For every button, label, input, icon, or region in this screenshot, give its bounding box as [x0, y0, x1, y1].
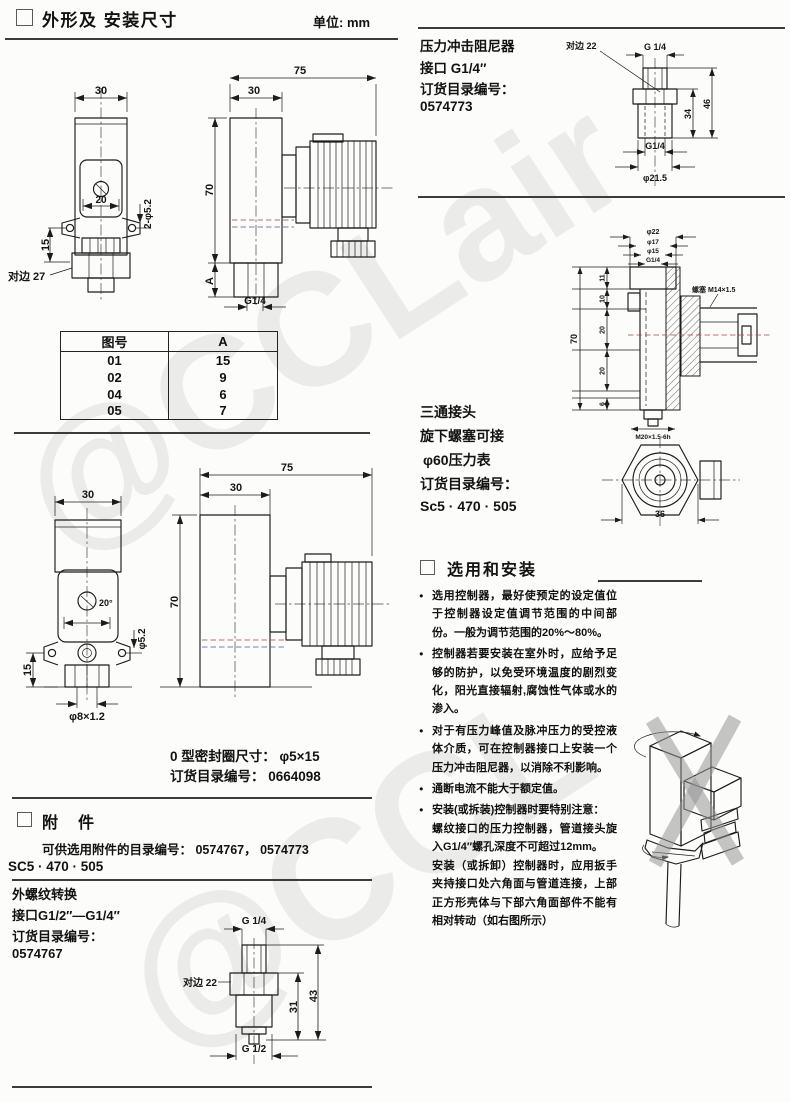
table-header-row: 图号 A [61, 332, 278, 352]
dim-label: G 1/4 [242, 916, 267, 927]
section-checkbox [17, 812, 32, 827]
dim-label: 15 [40, 239, 52, 251]
dim-label: 20 [600, 326, 607, 334]
cell-a: 6 [169, 386, 278, 403]
list-item: 安装(或拆装)控制器时要特别注意： 螺纹接口的压力控制器，管道接头旋入G1/4″… [419, 801, 617, 930]
bullet-text: 控制器若要安装在室外时，应给予足够的防护，以免受环境温度的剧烈变化，阳光直接辐射… [432, 648, 617, 715]
dim-label: 46 [702, 99, 712, 109]
dim-label: 20° [99, 598, 113, 608]
cell-a: 7 [169, 403, 278, 420]
divider [12, 797, 372, 799]
dim-label: 70 [169, 596, 181, 608]
divider [14, 432, 370, 434]
dim-label: 36 [655, 509, 665, 519]
dim-label: M20×1.5-6h [635, 434, 670, 441]
dim-label: 20 [600, 367, 607, 375]
list-item: 选用控制器，最好使预定的设定值位于控制器设定值调节范围的中间部份。一般为调节范围… [419, 587, 617, 642]
tee-note-1: 旋下螺塞可接 [420, 426, 504, 446]
table-row: 0115 [61, 352, 278, 369]
cell-no: 05 [61, 403, 169, 420]
col-header-a: A [169, 332, 278, 352]
bullet-subtext: 安装（或拆卸）控制器时，应用扳手夹持接口处六角面与管道连接，上部正方形壳体与下部… [432, 857, 617, 931]
table-row: 046 [61, 386, 278, 403]
bullet-text: 通断电流不能大于额定值。 [432, 783, 564, 795]
tee-note-2: φ60压力表 [423, 450, 491, 470]
page-title: 外形及 安装尺寸 [42, 6, 178, 31]
list-item: 通断电流不能大于额定值。 [419, 780, 617, 798]
divider [418, 27, 785, 29]
dim-label: φ17 [647, 239, 659, 246]
dim-label: 30 [230, 482, 242, 494]
adapter-catalog-label: 订货目录编号： [12, 926, 103, 945]
dim-label: 对边 27 [8, 269, 45, 283]
oring-size-note: 0 型密封圈尺寸： φ5×15 [170, 745, 320, 765]
adapter-catalog-number: 0574767 [12, 946, 63, 961]
bullet-text: 对于有压力峰值及脉冲压力的受控液体介质，可在控制器接口上安装一个压力冲击阻尼器，… [432, 725, 617, 774]
bullet-text: 安装(或拆装)控制器时要特别注意： [432, 801, 617, 819]
drawing-tee-connector: φ22 φ17 φ15 G1/4 螺塞 M14×1.5 [540, 212, 790, 538]
tee-catalog-label: 订货目录编号： [420, 474, 518, 494]
divider [418, 196, 785, 198]
list-item: 对于有压力峰值及脉冲压力的受控液体介质，可在控制器接口上安装一个压力冲击阻尼器，… [419, 722, 617, 777]
figure-number-table: 图号 A 0115 029 046 057 [60, 331, 278, 420]
drawing-outline-dimensions-1: 30 20 15 2-φ5.2 对边 27 [0, 55, 400, 325]
section-checkbox [420, 560, 435, 575]
cell-no: 04 [61, 386, 169, 403]
dim-label: 70 [204, 184, 216, 196]
dim-label: 20 [95, 195, 107, 206]
damper-catalog-label: 订货目录编号： [420, 78, 515, 98]
divider [12, 1086, 372, 1088]
cell-no: 01 [61, 352, 169, 369]
selection-title: 选用和安装 [447, 556, 537, 580]
drawing-thread-adapter: G 1/4 对边 22 31 43 G 1/2 [150, 905, 390, 1077]
bottom-view: 36 [601, 437, 740, 527]
bullet-text: 选用控制器，最好使预定的设定值位于控制器设定值调节范围的中间部份。一般为调节范围… [432, 590, 617, 639]
bullet-subtext: 螺纹接口的压力控制器，管道接头旋入G1/4″螺孔深度不可超过12mm。 [432, 820, 617, 857]
dim-label: G1/4 [646, 257, 660, 264]
dim-label: 75 [281, 462, 293, 474]
cell-no: 02 [61, 369, 169, 386]
dim-label: 2-φ5.2 [143, 199, 154, 229]
side-view: 75 30 70 A G1/4 [204, 65, 393, 311]
cell-a: 15 [169, 352, 278, 369]
dim-label: 对边 22 [566, 40, 597, 51]
accessories-model: SC5 · 470 · 505 [8, 859, 103, 874]
section-view: φ22 φ17 φ15 G1/4 螺塞 M14×1.5 [569, 229, 770, 441]
dim-label: 30 [248, 85, 260, 97]
dim-label: φ22 [647, 229, 660, 236]
dim-label: 31 [288, 1001, 300, 1013]
front-view: 30 20° φ5.2 15 φ8×1.2 [22, 489, 148, 723]
dim-label: 30 [82, 489, 94, 501]
damper-catalog-number: 0574773 [420, 99, 473, 114]
drawing-outline-dimensions-2: 30 20° φ5.2 15 φ8×1.2 [0, 455, 400, 747]
dim-label: G1/4 [244, 296, 266, 307]
divider [598, 580, 702, 582]
dim-label: 6 [600, 402, 607, 406]
dim-label: 43 [308, 990, 320, 1002]
table-row: 057 [61, 403, 278, 420]
drawing-pressure-damper: 对边 22 G 1/4 34 46 G1/4 φ21.5 [550, 32, 790, 200]
table-row: 029 [61, 369, 278, 386]
dim-label: 10 [600, 295, 607, 303]
tee-catalog-number: Sc5 · 470 · 505 [420, 498, 517, 514]
unit-label: 单位: mm [313, 12, 370, 31]
dim-label: 75 [294, 65, 306, 77]
dim-label: φ15 [647, 248, 659, 255]
drawing-no-rotation-warning [618, 692, 790, 958]
dim-label: G 1/4 [644, 42, 666, 52]
dim-label: 15 [22, 664, 34, 676]
accessories-catalog-numbers: 可供选用附件的目录编号： 0574767， 0574773 [42, 839, 309, 858]
cross-out-x [652, 718, 738, 864]
dim-label: A [204, 277, 216, 285]
dim-label: φ21.5 [643, 173, 667, 183]
oring-catalog-number: 订货目录编号： 0664098 [170, 765, 321, 785]
dim-label: G1/4 [645, 141, 665, 151]
side-view: 75 30 70 [160, 462, 392, 700]
dim-label: 70 [569, 334, 579, 344]
tee-name: 三通接头 [420, 402, 476, 422]
front-view: 30 20 15 2-φ5.2 对边 27 [8, 85, 154, 300]
adapter-ports: 接口G1/2″—G1/4″ [12, 905, 120, 924]
cell-a: 9 [169, 369, 278, 386]
adapter-name: 外螺纹转换 [12, 884, 77, 903]
dim-label: 对边 22 [183, 976, 217, 989]
dim-label: 11 [600, 274, 607, 282]
dim-label: φ8×1.2 [69, 711, 105, 723]
section-checkbox [16, 9, 33, 26]
dim-label: 34 [683, 109, 693, 119]
col-header-figure: 图号 [61, 332, 169, 352]
dim-label: 30 [95, 85, 107, 97]
selection-bullet-list: 选用控制器，最好使预定的设定值位于控制器设定值调节范围的中间部份。一般为调节范围… [419, 587, 617, 933]
divider [5, 38, 398, 40]
list-item: 控制器若要安装在室外时，应给予足够的防护，以免受环境温度的剧烈变化，阳光直接辐射… [419, 645, 617, 719]
damper-name: 压力冲击阻尼器 [420, 36, 515, 58]
plug-label: 螺塞 M14×1.5 [692, 285, 735, 294]
damper-port: 接口 G1/4″ [420, 57, 487, 77]
dim-label: G 1/2 [242, 1044, 267, 1055]
accessories-title: 附 件 [42, 809, 96, 833]
datasheet-page: @CCLair @CCL 外形及 安装尺寸 单位: mm 30 20 [0, 0, 790, 1102]
dim-label: φ5.2 [137, 628, 148, 649]
divider [12, 879, 372, 881]
